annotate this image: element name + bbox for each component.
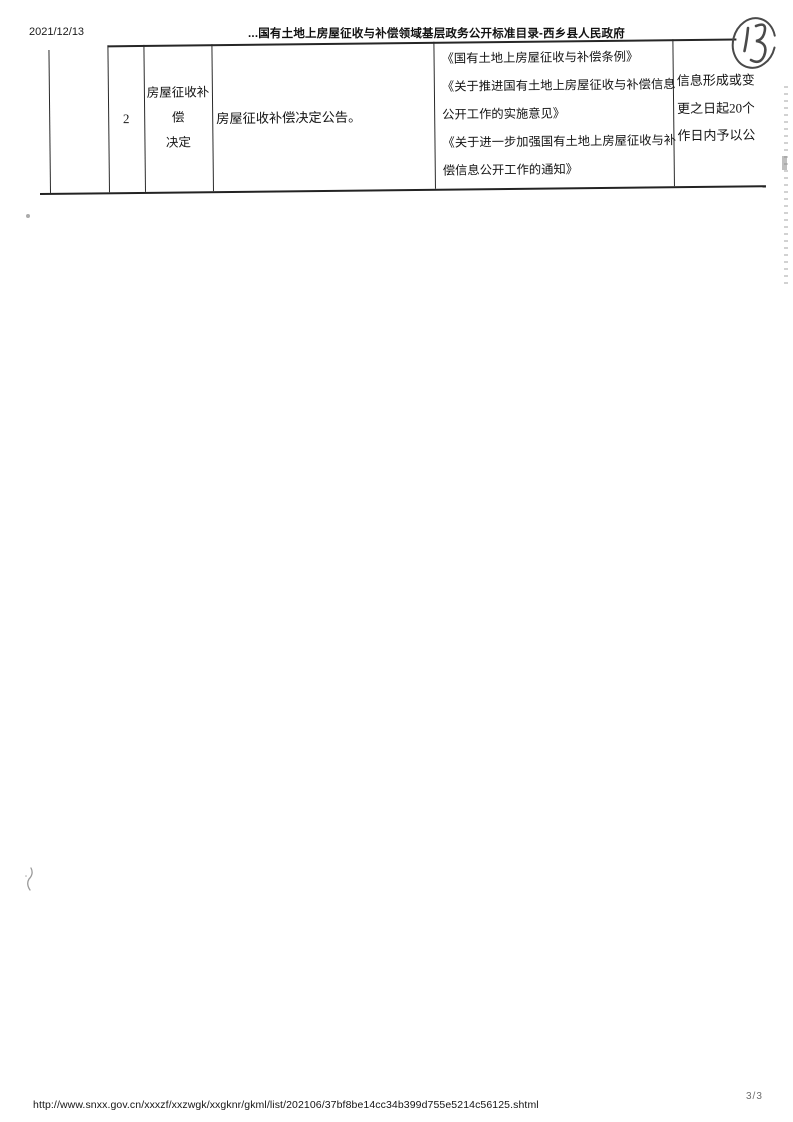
scan-artifact-blot (782, 156, 787, 170)
timing-line: 更之日起20个 (677, 94, 754, 122)
legal-basis-line: 《国有土地上房屋征收与补偿条例》 (441, 42, 674, 73)
legal-basis-line: 《关于进一步加强国有土地上房屋征收与补 (442, 126, 675, 157)
category-line: 决定 (166, 130, 191, 155)
table-left-stub-border (48, 50, 51, 193)
row-number: 2 (123, 111, 130, 127)
category-cell: 房屋征收补偿 决定 (143, 44, 213, 192)
scanned-document-page: 2021/12/13 ...国有土地上房屋征收与补偿领域基层政务公开标准目录-西… (0, 0, 793, 1122)
print-footer-url: http://www.snxx.gov.cn/xxxzf/xxzwgk/xxgk… (33, 1099, 539, 1111)
legal-basis-line: 公开工作的实施意见》 (442, 98, 675, 129)
category-line: 房屋征收补偿 (144, 80, 213, 131)
legal-basis-line: 偿信息公开工作的通知》 (443, 154, 676, 185)
disclosure-table: 2 房屋征收补偿 决定 房屋征收补偿决定公告。 《国有土地上房屋征收与补偿条例》… (43, 38, 771, 193)
disclosure-item-cell: 房屋征收补偿决定公告。 (213, 42, 435, 191)
row-number-cell: 2 (107, 45, 145, 192)
scan-artifact-speck (26, 214, 30, 218)
page-indicator: 3/3 (746, 1091, 763, 1102)
legal-basis-line: 《关于推进国有土地上房屋征收与补偿信息 (442, 70, 675, 101)
legal-basis-cell: 《国有土地上房屋征收与补偿条例》 《关于推进国有土地上房屋征收与补偿信息 公开工… (438, 39, 676, 189)
handwritten-circled-13-icon (727, 13, 783, 73)
timing-line: 作日内予以公 (677, 121, 754, 149)
disclosure-item: 房屋征收补偿决定公告。 (216, 107, 361, 128)
scan-artifact-edge-text (784, 86, 788, 286)
scan-artifact-squiggle (24, 866, 38, 894)
